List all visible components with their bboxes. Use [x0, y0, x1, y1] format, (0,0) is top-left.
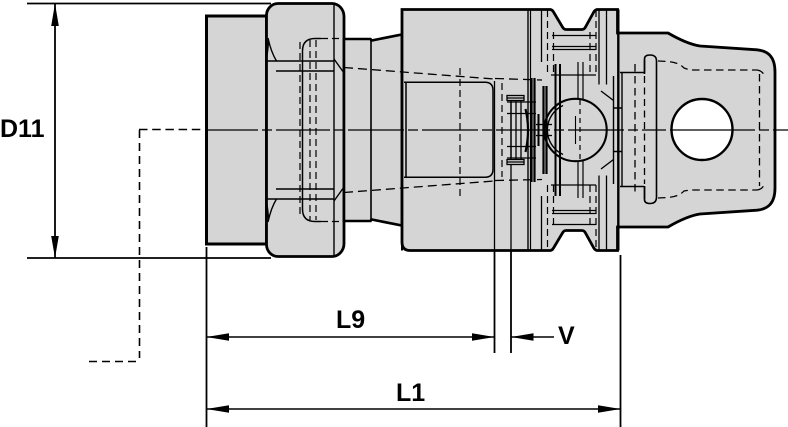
svg-text:D11: D11: [0, 115, 45, 143]
svg-text:V: V: [558, 322, 575, 350]
svg-text:L1: L1: [396, 379, 425, 407]
svg-text:L9: L9: [336, 306, 365, 334]
